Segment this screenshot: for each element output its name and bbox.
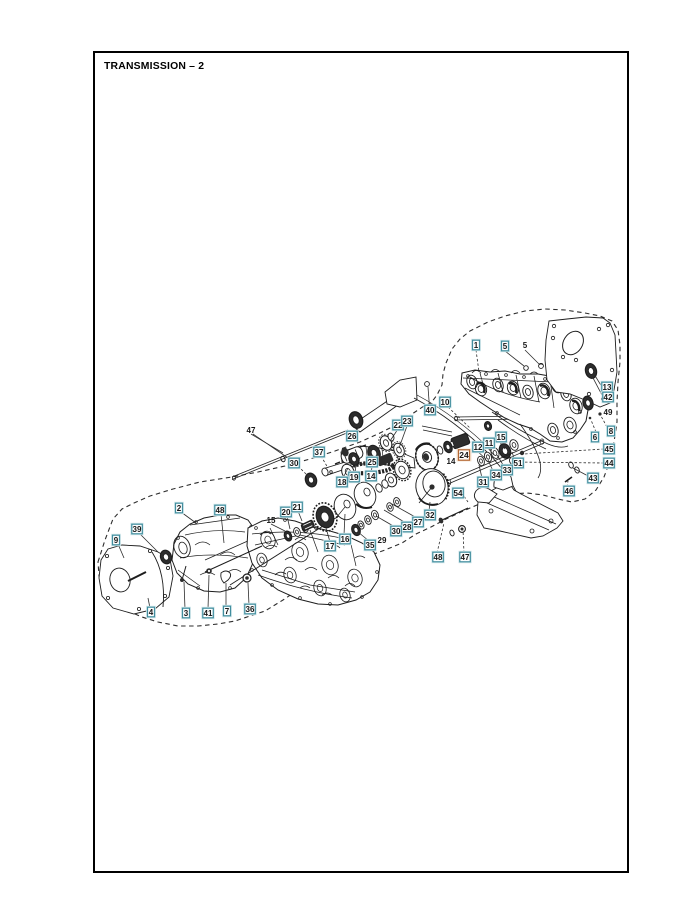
svg-text:44: 44	[605, 459, 614, 468]
svg-text:4: 4	[149, 608, 154, 617]
svg-text:6: 6	[593, 433, 598, 442]
svg-text:9: 9	[114, 536, 119, 545]
svg-text:49: 49	[604, 408, 613, 417]
svg-text:13: 13	[603, 383, 612, 392]
svg-text:41: 41	[204, 609, 213, 618]
svg-text:47: 47	[461, 553, 470, 562]
svg-text:16: 16	[341, 535, 350, 544]
svg-text:24: 24	[459, 450, 469, 460]
svg-text:15: 15	[497, 433, 506, 442]
svg-text:30: 30	[290, 459, 299, 468]
svg-text:47: 47	[247, 426, 256, 435]
svg-text:48: 48	[434, 553, 443, 562]
svg-text:36: 36	[246, 605, 255, 614]
svg-text:3: 3	[184, 609, 189, 618]
svg-text:45: 45	[605, 445, 614, 454]
svg-text:31: 31	[479, 478, 488, 487]
svg-text:28: 28	[403, 523, 412, 532]
svg-text:29: 29	[378, 536, 387, 545]
svg-text:43: 43	[589, 474, 598, 483]
svg-text:1: 1	[474, 341, 479, 350]
svg-text:14: 14	[447, 457, 456, 466]
svg-text:21: 21	[293, 503, 302, 512]
svg-text:12: 12	[474, 443, 483, 452]
svg-text:48: 48	[216, 506, 225, 515]
svg-text:18: 18	[338, 478, 347, 487]
svg-text:15: 15	[267, 516, 276, 525]
svg-text:14: 14	[367, 472, 376, 481]
svg-text:17: 17	[326, 542, 335, 551]
svg-text:54: 54	[454, 489, 463, 498]
svg-text:27: 27	[414, 518, 423, 527]
svg-text:5: 5	[503, 342, 508, 351]
svg-text:11: 11	[485, 439, 494, 448]
svg-text:37: 37	[315, 448, 324, 457]
svg-text:8: 8	[609, 427, 614, 436]
svg-text:34: 34	[492, 471, 501, 480]
svg-text:46: 46	[565, 487, 574, 496]
svg-text:40: 40	[426, 406, 435, 415]
svg-text:39: 39	[133, 525, 142, 534]
svg-text:35: 35	[366, 541, 375, 550]
svg-text:10: 10	[441, 398, 450, 407]
svg-text:51: 51	[514, 459, 523, 468]
svg-text:33: 33	[503, 466, 512, 475]
svg-text:25: 25	[368, 458, 377, 467]
svg-text:19: 19	[350, 473, 359, 482]
svg-text:7: 7	[225, 607, 230, 616]
svg-text:20: 20	[282, 508, 291, 517]
svg-text:42: 42	[604, 393, 613, 402]
svg-text:23: 23	[403, 417, 412, 426]
svg-text:32: 32	[426, 511, 435, 520]
svg-text:30: 30	[392, 527, 401, 536]
svg-text:26: 26	[348, 432, 357, 441]
svg-text:2: 2	[177, 504, 182, 513]
svg-text:5: 5	[523, 341, 528, 350]
